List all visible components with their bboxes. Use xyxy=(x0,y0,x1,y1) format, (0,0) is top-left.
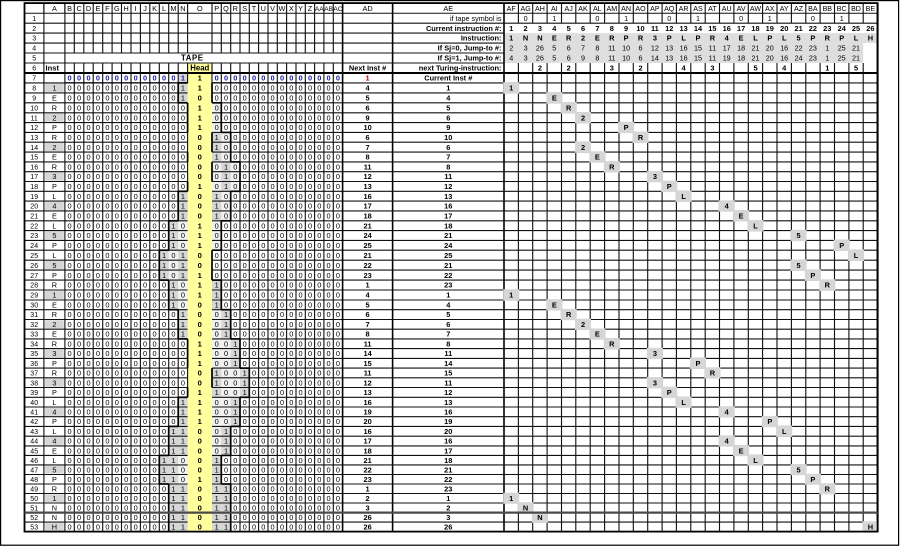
svg-text:10: 10 xyxy=(622,44,630,53)
svg-text:0: 0 xyxy=(143,446,147,455)
svg-text:0: 0 xyxy=(105,202,109,211)
svg-text:16: 16 xyxy=(30,164,38,171)
svg-text:0: 0 xyxy=(105,427,109,436)
svg-text:0: 0 xyxy=(308,182,312,191)
svg-text:0: 0 xyxy=(68,241,72,250)
svg-text:L: L xyxy=(854,34,859,43)
svg-text:0: 0 xyxy=(252,388,256,397)
svg-text:6: 6 xyxy=(32,66,36,73)
svg-text:0: 0 xyxy=(252,271,256,280)
svg-text:0: 0 xyxy=(68,251,72,260)
svg-text:0: 0 xyxy=(233,456,237,465)
svg-text:0: 0 xyxy=(77,104,81,113)
svg-text:P: P xyxy=(839,241,844,250)
svg-text:51: 51 xyxy=(30,505,38,512)
svg-text:20: 20 xyxy=(30,204,38,211)
svg-text:0: 0 xyxy=(162,202,166,211)
svg-text:0: 0 xyxy=(162,84,166,93)
svg-text:0: 0 xyxy=(134,172,138,181)
svg-text:5: 5 xyxy=(366,94,370,103)
svg-text:0: 0 xyxy=(224,251,228,260)
svg-text:0: 0 xyxy=(86,465,90,474)
svg-text:0: 0 xyxy=(243,310,247,319)
svg-text:0: 0 xyxy=(271,339,275,348)
svg-text:0: 0 xyxy=(317,104,321,113)
svg-text:47: 47 xyxy=(30,467,38,474)
svg-text:0: 0 xyxy=(299,94,303,103)
svg-text:0: 0 xyxy=(271,427,275,436)
svg-text:0: 0 xyxy=(162,369,166,378)
svg-text:0: 0 xyxy=(162,378,166,387)
svg-text:0: 0 xyxy=(327,475,331,484)
svg-text:0: 0 xyxy=(198,251,202,260)
svg-text:0: 0 xyxy=(299,310,303,319)
svg-text:0: 0 xyxy=(143,349,147,358)
svg-text:0: 0 xyxy=(233,212,237,221)
svg-text:0: 0 xyxy=(299,153,303,162)
svg-text:1: 1 xyxy=(181,408,185,417)
svg-text:11: 11 xyxy=(709,44,716,53)
svg-text:0: 0 xyxy=(336,503,340,512)
svg-text:0: 0 xyxy=(252,456,256,465)
svg-text:0: 0 xyxy=(308,251,312,260)
svg-text:0: 0 xyxy=(105,281,109,290)
svg-text:0: 0 xyxy=(143,113,147,122)
svg-text:0: 0 xyxy=(336,408,340,417)
svg-text:0: 0 xyxy=(86,212,90,221)
svg-text:7: 7 xyxy=(32,76,36,83)
svg-text:0: 0 xyxy=(308,417,312,426)
svg-text:R: R xyxy=(825,281,831,290)
svg-text:1: 1 xyxy=(224,172,228,181)
svg-text:0: 0 xyxy=(77,437,81,446)
svg-text:0: 0 xyxy=(153,408,157,417)
svg-text:3: 3 xyxy=(710,64,714,73)
svg-text:0: 0 xyxy=(134,74,138,83)
svg-text:0: 0 xyxy=(271,398,275,407)
svg-text:0: 0 xyxy=(68,523,72,532)
svg-text:0: 0 xyxy=(271,192,275,201)
svg-text:22: 22 xyxy=(809,24,817,33)
svg-text:0: 0 xyxy=(317,388,321,397)
svg-text:P: P xyxy=(52,417,57,426)
svg-text:0: 0 xyxy=(215,221,219,230)
svg-text:0: 0 xyxy=(143,503,147,512)
svg-text:0: 0 xyxy=(162,320,166,329)
svg-text:0: 0 xyxy=(115,202,119,211)
svg-text:18: 18 xyxy=(444,456,452,465)
svg-text:2: 2 xyxy=(52,320,56,329)
svg-text:0: 0 xyxy=(115,221,119,230)
svg-text:1: 1 xyxy=(181,212,185,221)
svg-text:0: 0 xyxy=(252,202,256,211)
svg-text:0: 0 xyxy=(143,456,147,465)
svg-text:25: 25 xyxy=(838,54,846,63)
svg-text:1: 1 xyxy=(181,74,185,83)
svg-text:0: 0 xyxy=(162,503,166,512)
svg-text:0: 0 xyxy=(327,84,331,93)
svg-text:0: 0 xyxy=(243,513,247,522)
svg-text:9: 9 xyxy=(624,24,628,33)
svg-text:0: 0 xyxy=(299,182,303,191)
svg-text:4: 4 xyxy=(52,437,56,446)
svg-text:0: 0 xyxy=(280,192,284,201)
svg-text:0: 0 xyxy=(308,349,312,358)
svg-text:0: 0 xyxy=(233,484,237,493)
svg-text:23: 23 xyxy=(444,281,452,290)
svg-text:15: 15 xyxy=(694,44,702,53)
svg-text:0: 0 xyxy=(233,271,237,280)
svg-text:0: 0 xyxy=(271,320,275,329)
svg-text:0: 0 xyxy=(261,251,265,260)
svg-text:0: 0 xyxy=(243,261,247,270)
svg-text:0: 0 xyxy=(181,172,185,181)
svg-text:0: 0 xyxy=(215,123,219,132)
svg-text:0: 0 xyxy=(134,202,138,211)
svg-text:0: 0 xyxy=(162,291,166,300)
svg-text:28: 28 xyxy=(30,283,38,290)
svg-text:0: 0 xyxy=(289,378,293,387)
svg-text:0: 0 xyxy=(153,388,157,397)
svg-text:0: 0 xyxy=(336,465,340,474)
svg-text:1: 1 xyxy=(215,202,219,211)
svg-text:0: 0 xyxy=(317,192,321,201)
svg-text:0: 0 xyxy=(289,212,293,221)
svg-text:0: 0 xyxy=(68,104,72,113)
svg-text:1: 1 xyxy=(552,14,556,23)
svg-text:0: 0 xyxy=(524,14,528,23)
svg-text:0: 0 xyxy=(134,291,138,300)
svg-text:0: 0 xyxy=(153,359,157,368)
svg-text:0: 0 xyxy=(105,143,109,152)
svg-text:1: 1 xyxy=(366,74,370,83)
svg-text:3: 3 xyxy=(446,513,450,522)
svg-text:0: 0 xyxy=(86,84,90,93)
svg-text:0: 0 xyxy=(68,281,72,290)
svg-text:6: 6 xyxy=(639,54,643,63)
svg-text:0: 0 xyxy=(134,456,138,465)
svg-text:0: 0 xyxy=(215,339,219,348)
svg-text:1: 1 xyxy=(825,64,829,73)
svg-text:0: 0 xyxy=(327,330,331,339)
svg-text:0: 0 xyxy=(162,494,166,503)
svg-text:0: 0 xyxy=(143,84,147,93)
svg-text:0: 0 xyxy=(299,172,303,181)
svg-text:0: 0 xyxy=(115,84,119,93)
svg-text:BA: BA xyxy=(808,5,818,13)
svg-text:0: 0 xyxy=(336,301,340,310)
svg-text:Current Inst #: Current Inst # xyxy=(424,74,472,83)
svg-text:0: 0 xyxy=(289,513,293,522)
svg-text:0: 0 xyxy=(215,182,219,191)
svg-text:1: 1 xyxy=(840,14,844,23)
svg-text:0: 0 xyxy=(77,261,81,270)
svg-text:3: 3 xyxy=(653,34,657,43)
svg-text:0: 0 xyxy=(289,301,293,310)
svg-text:0: 0 xyxy=(289,369,293,378)
svg-text:1: 1 xyxy=(215,301,219,310)
svg-text:0: 0 xyxy=(86,231,90,240)
svg-text:24: 24 xyxy=(838,24,847,33)
svg-text:E: E xyxy=(595,330,600,339)
svg-text:0: 0 xyxy=(317,133,321,142)
svg-text:0: 0 xyxy=(105,251,109,260)
svg-text:0: 0 xyxy=(134,212,138,221)
svg-text:0: 0 xyxy=(280,484,284,493)
svg-text:TAPE: TAPE xyxy=(181,54,204,63)
svg-text:0: 0 xyxy=(124,398,128,407)
svg-text:0: 0 xyxy=(96,202,100,211)
svg-text:0: 0 xyxy=(308,231,312,240)
svg-text:0: 0 xyxy=(261,339,265,348)
svg-text:0: 0 xyxy=(327,251,331,260)
svg-text:10: 10 xyxy=(444,133,452,142)
svg-text:0: 0 xyxy=(77,446,81,455)
svg-text:0: 0 xyxy=(327,153,331,162)
svg-text:0: 0 xyxy=(181,143,185,152)
svg-text:0: 0 xyxy=(261,221,265,230)
svg-text:0: 0 xyxy=(243,456,247,465)
svg-text:0: 0 xyxy=(68,212,72,221)
svg-text:12: 12 xyxy=(363,172,371,181)
svg-text:0: 0 xyxy=(280,320,284,329)
svg-text:0: 0 xyxy=(224,271,228,280)
svg-text:0: 0 xyxy=(233,231,237,240)
svg-text:0: 0 xyxy=(233,104,237,113)
svg-text:0: 0 xyxy=(243,153,247,162)
svg-text:0: 0 xyxy=(252,104,256,113)
svg-text:0: 0 xyxy=(198,94,202,103)
svg-text:0: 0 xyxy=(115,301,119,310)
svg-text:1: 1 xyxy=(446,291,450,300)
svg-text:0: 0 xyxy=(233,427,237,436)
svg-text:0: 0 xyxy=(68,182,72,191)
svg-text:0: 0 xyxy=(162,104,166,113)
svg-text:0: 0 xyxy=(77,523,81,532)
svg-text:0: 0 xyxy=(336,172,340,181)
svg-text:0: 0 xyxy=(171,212,175,221)
svg-text:0: 0 xyxy=(224,359,228,368)
svg-text:0: 0 xyxy=(124,202,128,211)
svg-text:V: V xyxy=(270,4,275,13)
svg-text:0: 0 xyxy=(252,182,256,191)
svg-text:Next Inst #: Next Inst # xyxy=(349,64,386,73)
svg-text:0: 0 xyxy=(124,74,128,83)
svg-text:0: 0 xyxy=(308,172,312,181)
svg-text:0: 0 xyxy=(299,104,303,113)
svg-text:16: 16 xyxy=(723,24,731,33)
svg-text:1: 1 xyxy=(32,16,36,23)
svg-text:0: 0 xyxy=(134,349,138,358)
svg-text:0: 0 xyxy=(162,192,166,201)
svg-text:3: 3 xyxy=(653,349,657,358)
svg-text:0: 0 xyxy=(181,133,185,142)
svg-text:0: 0 xyxy=(115,94,119,103)
svg-text:0: 0 xyxy=(68,408,72,417)
svg-text:0: 0 xyxy=(289,231,293,240)
svg-text:0: 0 xyxy=(280,241,284,250)
svg-text:1: 1 xyxy=(446,494,450,503)
svg-text:0: 0 xyxy=(198,437,202,446)
svg-text:0: 0 xyxy=(68,113,72,122)
svg-text:0: 0 xyxy=(181,231,185,240)
svg-text:0: 0 xyxy=(243,281,247,290)
svg-text:0: 0 xyxy=(162,94,166,103)
svg-text:M: M xyxy=(170,4,176,13)
svg-text:0: 0 xyxy=(162,417,166,426)
svg-text:0: 0 xyxy=(86,494,90,503)
svg-text:0: 0 xyxy=(115,398,119,407)
svg-text:0: 0 xyxy=(327,74,331,83)
svg-text:G: G xyxy=(114,4,120,13)
svg-text:0: 0 xyxy=(271,84,275,93)
svg-text:AG: AG xyxy=(520,5,530,13)
svg-text:0: 0 xyxy=(252,310,256,319)
svg-text:0: 0 xyxy=(243,446,247,455)
svg-text:0: 0 xyxy=(289,84,293,93)
svg-text:0: 0 xyxy=(96,330,100,339)
svg-text:11: 11 xyxy=(31,115,38,122)
svg-text:0: 0 xyxy=(289,113,293,122)
svg-text:0: 0 xyxy=(336,123,340,132)
svg-text:14: 14 xyxy=(363,349,372,358)
svg-text:1: 1 xyxy=(162,261,166,270)
svg-text:1: 1 xyxy=(215,484,219,493)
svg-text:P: P xyxy=(696,359,701,368)
svg-text:E: E xyxy=(552,34,557,43)
svg-text:21: 21 xyxy=(30,214,38,221)
svg-text:2: 2 xyxy=(366,494,370,503)
svg-text:0: 0 xyxy=(162,162,166,171)
svg-text:0: 0 xyxy=(317,427,321,436)
svg-text:0: 0 xyxy=(233,251,237,260)
svg-text:0: 0 xyxy=(252,349,256,358)
svg-text:0: 0 xyxy=(68,427,72,436)
svg-text:0: 0 xyxy=(115,113,119,122)
svg-text:0: 0 xyxy=(299,417,303,426)
svg-text:26: 26 xyxy=(363,513,371,522)
svg-text:5: 5 xyxy=(52,465,56,474)
svg-text:0: 0 xyxy=(143,359,147,368)
svg-text:1: 1 xyxy=(171,456,175,465)
svg-text:0: 0 xyxy=(153,133,157,142)
svg-text:0: 0 xyxy=(261,388,265,397)
svg-text:0: 0 xyxy=(327,162,331,171)
svg-text:0: 0 xyxy=(86,94,90,103)
svg-text:AY: AY xyxy=(780,5,789,13)
svg-text:0: 0 xyxy=(327,281,331,290)
svg-text:1: 1 xyxy=(171,231,175,240)
svg-text:0: 0 xyxy=(336,271,340,280)
svg-text:3: 3 xyxy=(653,378,657,387)
svg-text:20: 20 xyxy=(766,44,774,53)
svg-text:0: 0 xyxy=(327,417,331,426)
svg-text:0: 0 xyxy=(261,162,265,171)
svg-text:0: 0 xyxy=(153,349,157,358)
svg-text:0: 0 xyxy=(124,437,128,446)
svg-text:0: 0 xyxy=(299,475,303,484)
svg-text:8: 8 xyxy=(610,24,614,33)
svg-text:0: 0 xyxy=(162,398,166,407)
svg-text:0: 0 xyxy=(280,465,284,474)
svg-text:0: 0 xyxy=(96,369,100,378)
svg-text:0: 0 xyxy=(308,271,312,280)
svg-text:0: 0 xyxy=(289,503,293,512)
svg-text:0: 0 xyxy=(224,369,228,378)
svg-text:P: P xyxy=(810,271,815,280)
svg-text:7: 7 xyxy=(446,153,450,162)
svg-text:48: 48 xyxy=(30,477,38,484)
svg-text:0: 0 xyxy=(317,212,321,221)
svg-text:0: 0 xyxy=(143,251,147,260)
svg-text:30: 30 xyxy=(30,303,38,310)
svg-text:L: L xyxy=(681,192,686,201)
svg-text:20: 20 xyxy=(766,54,774,63)
svg-text:0: 0 xyxy=(153,446,157,455)
svg-text:0: 0 xyxy=(243,523,247,532)
svg-text:13: 13 xyxy=(665,54,673,63)
svg-text:1: 1 xyxy=(233,408,237,417)
svg-text:0: 0 xyxy=(261,475,265,484)
svg-text:0: 0 xyxy=(96,291,100,300)
svg-text:0: 0 xyxy=(105,261,109,270)
svg-text:0: 0 xyxy=(96,281,100,290)
svg-text:0: 0 xyxy=(336,182,340,191)
svg-text:0: 0 xyxy=(308,446,312,455)
svg-text:0: 0 xyxy=(68,192,72,201)
svg-text:AV: AV xyxy=(737,5,746,13)
svg-text:0: 0 xyxy=(243,339,247,348)
svg-text:0: 0 xyxy=(243,330,247,339)
svg-text:0: 0 xyxy=(143,261,147,270)
svg-text:1: 1 xyxy=(224,446,228,455)
svg-text:P: P xyxy=(52,388,57,397)
svg-text:0: 0 xyxy=(153,212,157,221)
svg-text:21: 21 xyxy=(852,44,860,53)
svg-text:0: 0 xyxy=(162,349,166,358)
svg-text:R: R xyxy=(710,369,716,378)
svg-text:0: 0 xyxy=(215,241,219,250)
svg-text:0: 0 xyxy=(115,388,119,397)
svg-text:0: 0 xyxy=(289,320,293,329)
svg-text:AM: AM xyxy=(606,5,617,13)
svg-text:0: 0 xyxy=(252,523,256,532)
svg-text:0: 0 xyxy=(243,475,247,484)
svg-text:0: 0 xyxy=(124,84,128,93)
svg-text:0: 0 xyxy=(124,281,128,290)
svg-text:0: 0 xyxy=(181,475,185,484)
svg-text:0: 0 xyxy=(96,349,100,358)
svg-text:0: 0 xyxy=(105,359,109,368)
svg-text:0: 0 xyxy=(289,104,293,113)
svg-text:0: 0 xyxy=(336,398,340,407)
svg-text:1: 1 xyxy=(215,456,219,465)
svg-text:0: 0 xyxy=(96,398,100,407)
svg-text:BE: BE xyxy=(866,5,876,13)
svg-text:0: 0 xyxy=(271,408,275,417)
svg-text:0: 0 xyxy=(105,369,109,378)
svg-text:0: 0 xyxy=(271,513,275,522)
svg-text:0: 0 xyxy=(327,104,331,113)
svg-text:0: 0 xyxy=(308,221,312,230)
svg-text:0: 0 xyxy=(280,261,284,270)
svg-text:0: 0 xyxy=(124,523,128,532)
svg-text:0: 0 xyxy=(336,221,340,230)
svg-text:0: 0 xyxy=(317,74,321,83)
svg-text:0: 0 xyxy=(171,84,175,93)
svg-text:R: R xyxy=(609,162,615,171)
svg-text:0: 0 xyxy=(105,301,109,310)
